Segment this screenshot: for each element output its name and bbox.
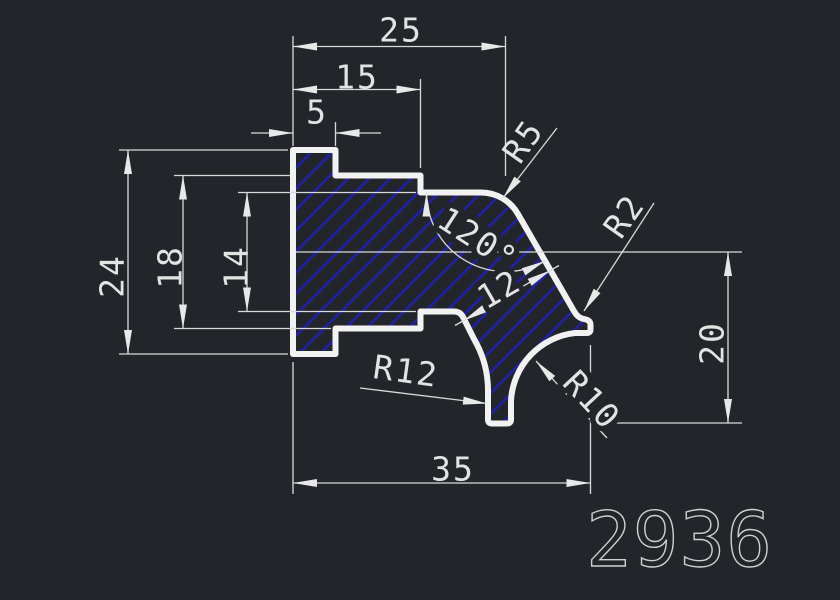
- dim-20-label: 20: [693, 321, 732, 365]
- dim-35-label: 35: [431, 450, 475, 489]
- dim-14-label: 14: [217, 245, 256, 289]
- dim-25-label: 25: [379, 11, 423, 50]
- dim-24-label: 24: [93, 254, 132, 298]
- part-number-label: 2936: [586, 495, 773, 584]
- dim-5-label: 5: [306, 93, 328, 132]
- cad-viewport[interactable]: 25 15 5 24 18: [0, 0, 840, 600]
- dim-18-label: 18: [151, 245, 190, 289]
- cad-drawing: 25 15 5 24 18: [0, 0, 840, 600]
- dim-15-label: 15: [335, 58, 379, 97]
